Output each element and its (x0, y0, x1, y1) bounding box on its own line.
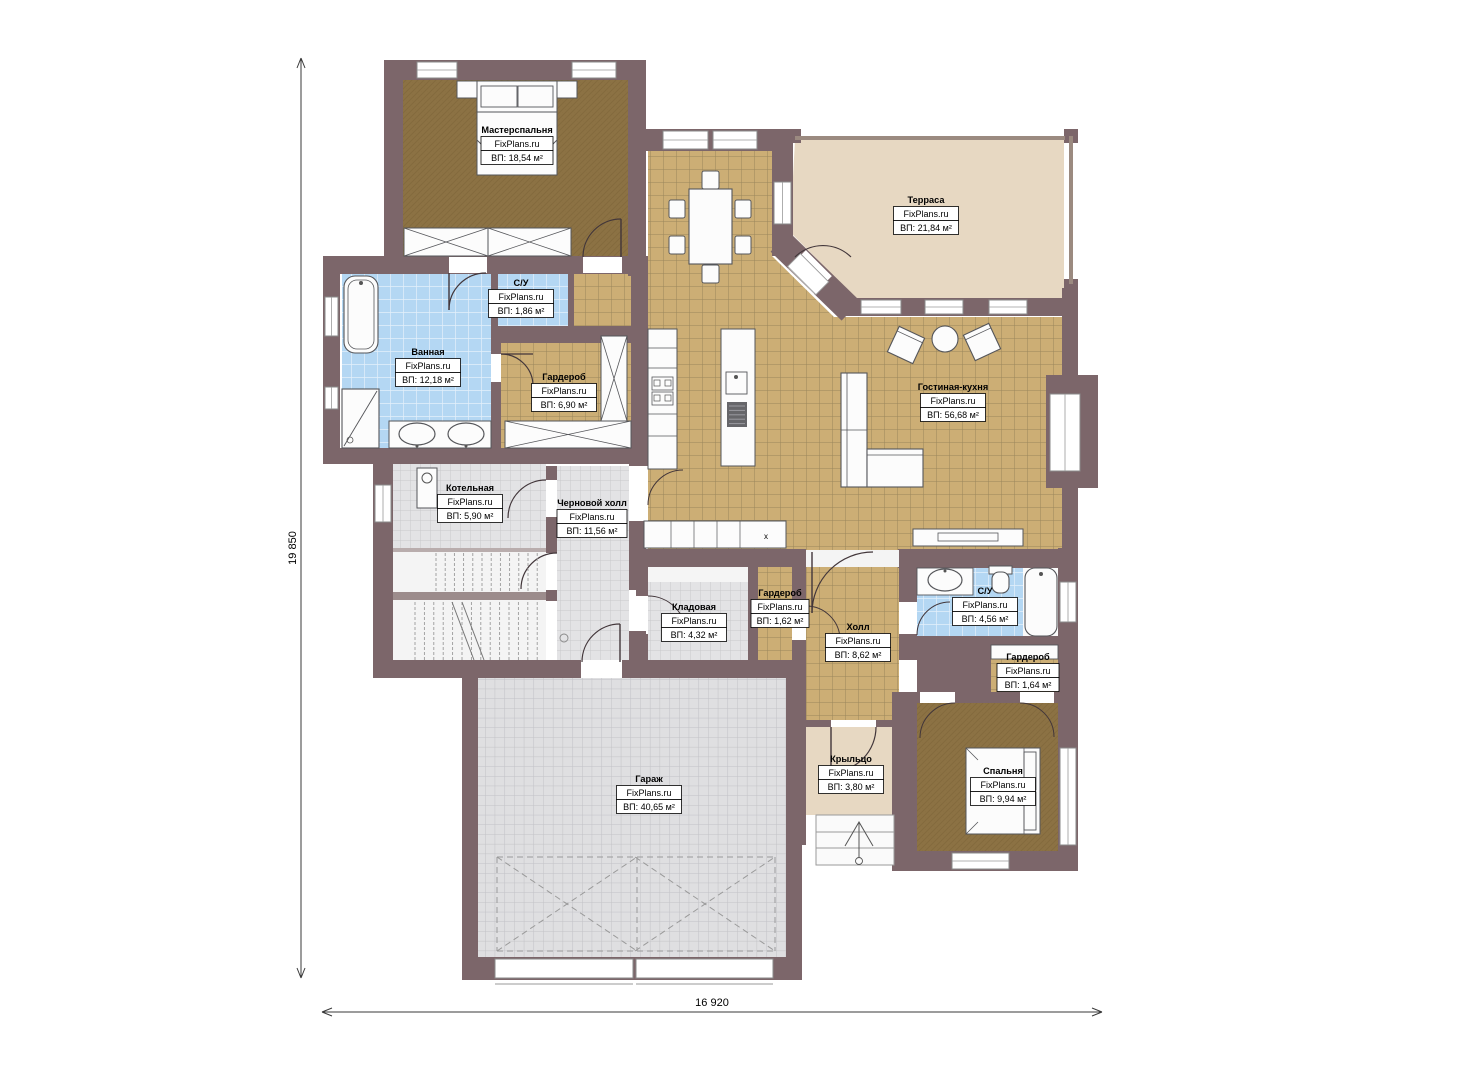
svg-text:ВП: 11,56 м²: ВП: 11,56 м² (566, 526, 617, 536)
svg-text:FixPlans.ru: FixPlans.ru (498, 292, 543, 302)
svg-text:FixPlans.ru: FixPlans.ru (962, 600, 1007, 610)
svg-text:FixPlans.ru: FixPlans.ru (835, 636, 880, 646)
svg-text:ВП: 4,56 м²: ВП: 4,56 м² (962, 614, 1009, 624)
svg-text:FixPlans.ru: FixPlans.ru (930, 396, 975, 406)
svg-text:ВП: 18,54 м²: ВП: 18,54 м² (491, 153, 543, 163)
svg-text:FixPlans.ru: FixPlans.ru (494, 139, 539, 149)
svg-text:16 920: 16 920 (695, 997, 729, 1009)
svg-text:FixPlans.ru: FixPlans.ru (541, 386, 586, 396)
svg-text:ВП: 1,62 м²: ВП: 1,62 м² (757, 616, 804, 626)
svg-text:С/У: С/У (514, 278, 529, 288)
svg-text:ВП: 3,80 м²: ВП: 3,80 м² (828, 782, 875, 792)
svg-text:Котельная: Котельная (446, 483, 494, 493)
svg-text:FixPlans.ru: FixPlans.ru (626, 788, 671, 798)
svg-text:Гардероб: Гардероб (542, 372, 586, 382)
svg-text:ВП: 40,65 м²: ВП: 40,65 м² (623, 802, 675, 812)
svg-text:FixPlans.ru: FixPlans.ru (405, 361, 450, 371)
svg-text:Мастерспальня: Мастерспальня (481, 125, 552, 135)
svg-text:ВП: 21,84 м²: ВП: 21,84 м² (900, 223, 952, 233)
svg-text:ВП: 56,68 м²: ВП: 56,68 м² (927, 410, 979, 420)
svg-text:ВП: 8,62 м²: ВП: 8,62 м² (835, 650, 882, 660)
svg-text:FixPlans.ru: FixPlans.ru (757, 602, 802, 612)
svg-text:ВП: 4,32 м²: ВП: 4,32 м² (671, 630, 718, 640)
svg-text:Ванная: Ванная (411, 347, 444, 357)
svg-text:Гостиная-кухня: Гостиная-кухня (918, 382, 988, 392)
svg-text:FixPlans.ru: FixPlans.ru (903, 209, 948, 219)
svg-text:ВП: 9,94 м²: ВП: 9,94 м² (980, 794, 1027, 804)
svg-text:FixPlans.ru: FixPlans.ru (447, 497, 492, 507)
svg-text:FixPlans.ru: FixPlans.ru (1005, 666, 1050, 676)
svg-text:FixPlans.ru: FixPlans.ru (671, 616, 716, 626)
svg-text:ВП: 12,18 м²: ВП: 12,18 м² (402, 375, 454, 385)
svg-text:Спальня: Спальня (983, 766, 1023, 776)
svg-text:С/У: С/У (978, 586, 993, 596)
svg-text:FixPlans.ru: FixPlans.ru (569, 512, 614, 522)
svg-text:Гараж: Гараж (635, 774, 663, 784)
svg-text:Крыльцо: Крыльцо (830, 754, 872, 764)
svg-text:ВП: 1,64 м²: ВП: 1,64 м² (1005, 680, 1052, 690)
svg-text:FixPlans.ru: FixPlans.ru (980, 780, 1025, 790)
svg-text:ВП: 6,90 м²: ВП: 6,90 м² (541, 400, 588, 410)
svg-text:x: x (764, 532, 768, 541)
svg-text:Черновой холл: Черновой холл (557, 498, 627, 508)
svg-text:ВП: 1,86 м²: ВП: 1,86 м² (498, 306, 545, 316)
svg-text:Холл: Холл (846, 622, 869, 632)
svg-text:19 850: 19 850 (287, 531, 299, 565)
svg-text:FixPlans.ru: FixPlans.ru (828, 768, 873, 778)
svg-text:Гардероб: Гардероб (1006, 652, 1050, 662)
svg-text:Кладовая: Кладовая (672, 602, 716, 612)
svg-text:Гардероб: Гардероб (758, 588, 802, 598)
svg-text:Терраса: Терраса (908, 195, 946, 205)
svg-text:ВП: 5,90 м²: ВП: 5,90 м² (447, 511, 494, 521)
